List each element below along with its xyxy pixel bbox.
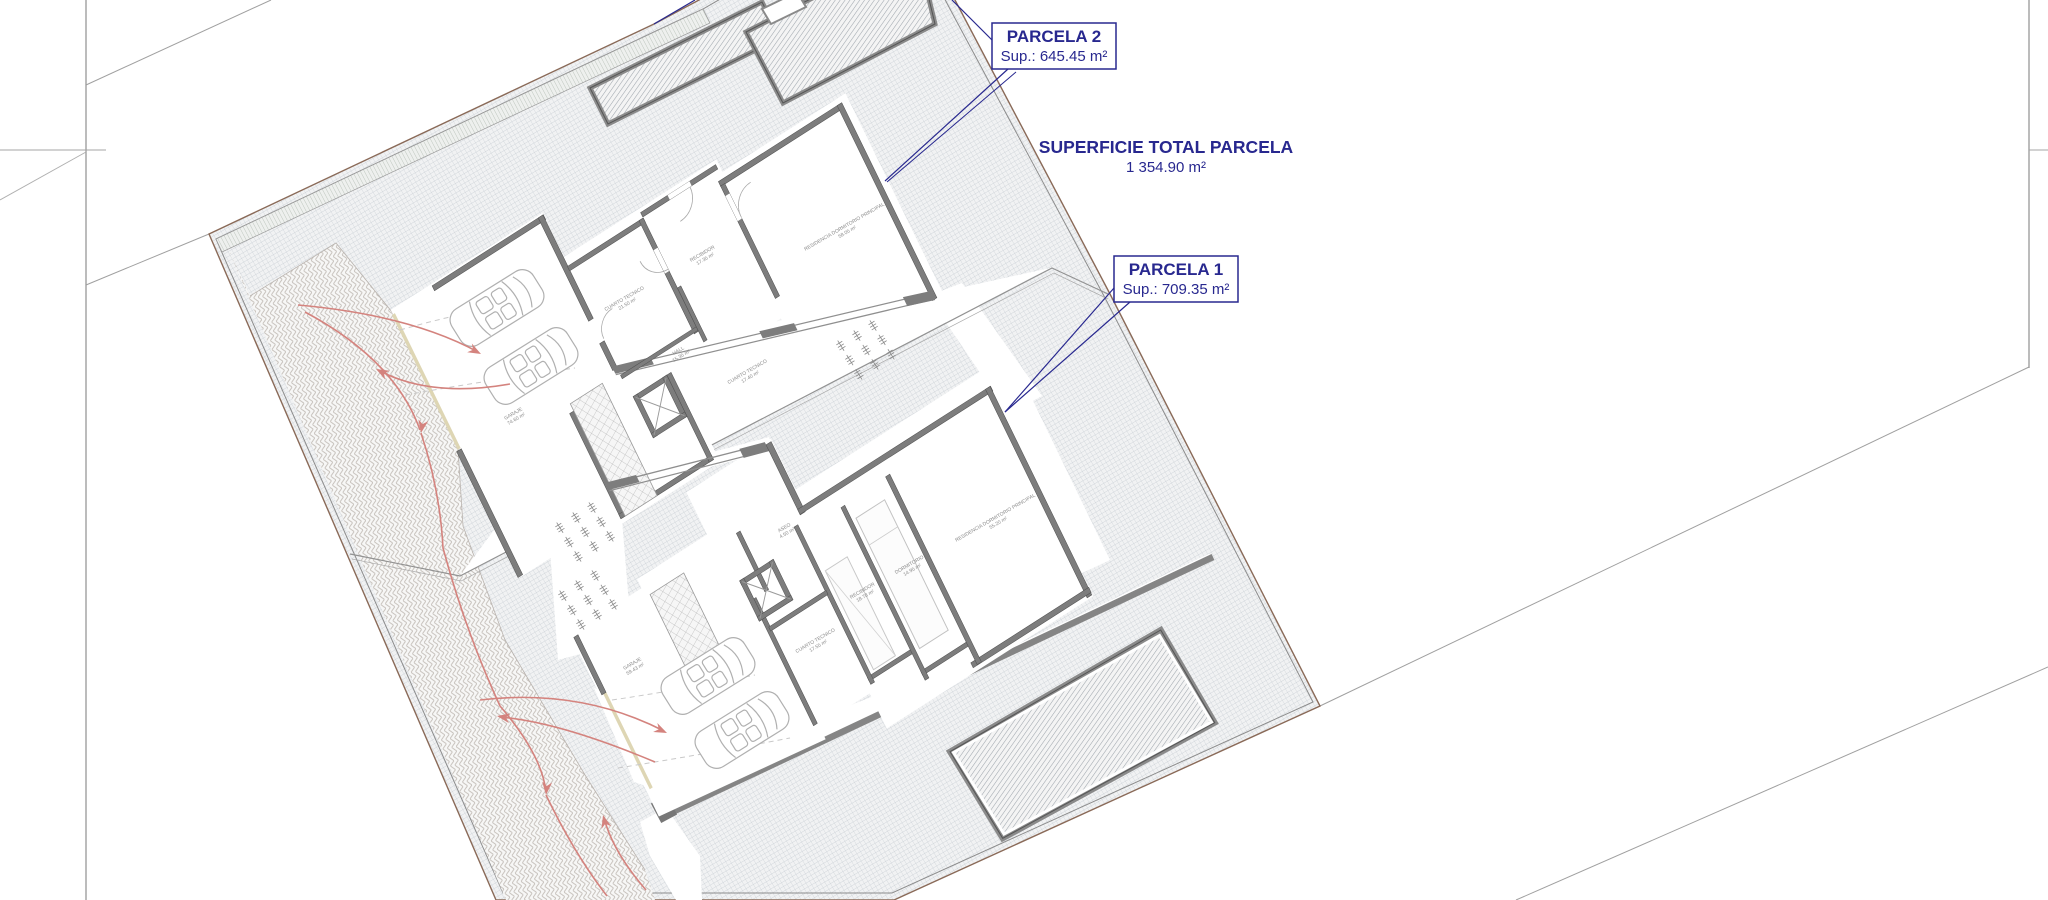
svg-text:SUPERFICIE TOTAL PARCELA: SUPERFICIE TOTAL PARCELA xyxy=(1039,137,1294,157)
svg-text:Sup.: 645.45 m²: Sup.: 645.45 m² xyxy=(1001,48,1108,65)
svg-text:Sup.: 709.35 m²: Sup.: 709.35 m² xyxy=(1123,281,1230,298)
svg-text:PARCELA 2: PARCELA 2 xyxy=(1007,27,1101,46)
svg-text:PARCELA 1: PARCELA 1 xyxy=(1129,260,1223,279)
svg-text:1 354.90 m²: 1 354.90 m² xyxy=(1126,159,1206,176)
